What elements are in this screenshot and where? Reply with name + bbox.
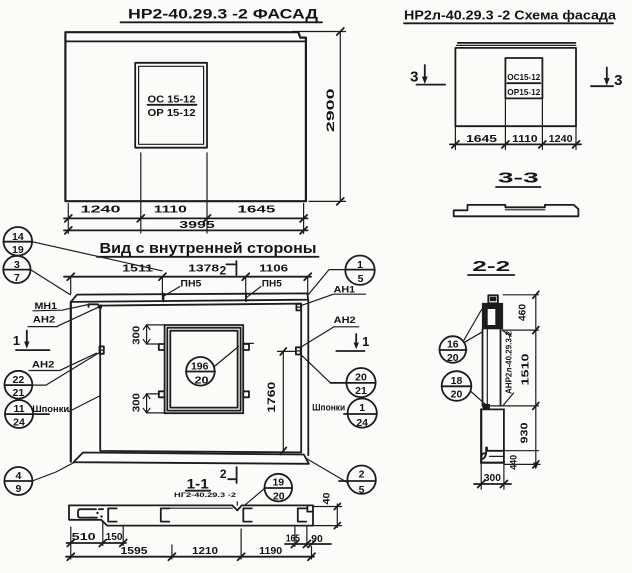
- svg-text:11: 11: [13, 403, 24, 415]
- svg-text:165: 165: [286, 534, 300, 545]
- svg-text:1: 1: [357, 259, 363, 271]
- svg-text:1106: 1106: [259, 263, 288, 275]
- svg-text:3: 3: [614, 72, 622, 89]
- svg-text:1: 1: [362, 334, 369, 349]
- svg-text:5: 5: [359, 484, 365, 496]
- svg-text:3-3: 3-3: [498, 171, 539, 187]
- svg-text:1110: 1110: [154, 204, 187, 216]
- svg-text:20: 20: [451, 389, 463, 401]
- svg-text:19: 19: [272, 476, 284, 488]
- svg-text:196: 196: [191, 361, 209, 373]
- svg-text:АН2: АН2: [334, 315, 356, 326]
- svg-text:1595: 1595: [121, 546, 149, 557]
- svg-text:1190: 1190: [259, 546, 282, 557]
- svg-text:300: 300: [131, 325, 142, 344]
- svg-text:7: 7: [14, 272, 20, 284]
- svg-text:3: 3: [14, 259, 20, 271]
- svg-text:21: 21: [355, 385, 367, 397]
- svg-text:НР2л-40.29.3 -2 Схема фасада: НР2л-40.29.3 -2 Схема фасада: [404, 8, 617, 23]
- svg-text:22: 22: [13, 374, 25, 386]
- svg-text:4: 4: [15, 470, 21, 482]
- svg-text:460: 460: [516, 304, 528, 321]
- svg-text:20: 20: [447, 352, 459, 364]
- svg-text:ОС15-12: ОС15-12: [507, 72, 540, 82]
- svg-text:ПН5: ПН5: [262, 278, 283, 289]
- svg-text:1240: 1240: [81, 204, 121, 216]
- svg-text:14: 14: [12, 231, 24, 243]
- svg-text:2900: 2900: [325, 88, 337, 132]
- svg-text:19: 19: [12, 244, 24, 256]
- svg-text:150: 150: [106, 532, 123, 543]
- svg-text:АН2: АН2: [32, 360, 55, 371]
- svg-text:1645: 1645: [237, 204, 275, 216]
- svg-text:2: 2: [219, 264, 226, 278]
- svg-text:Шпонки: Шпонки: [312, 403, 345, 414]
- svg-text:5: 5: [358, 273, 364, 285]
- svg-text:16: 16: [447, 339, 459, 351]
- svg-text:24: 24: [356, 417, 368, 429]
- svg-text:1: 1: [359, 402, 365, 414]
- svg-text:40: 40: [322, 493, 333, 505]
- svg-text:НР2-40.29.3 -2 ФАСАД: НР2-40.29.3 -2 ФАСАД: [128, 7, 318, 22]
- svg-text:АН2: АН2: [33, 315, 56, 326]
- svg-text:930: 930: [518, 422, 530, 443]
- svg-text:90: 90: [311, 534, 323, 545]
- svg-text:3: 3: [410, 69, 418, 86]
- svg-text:1760: 1760: [266, 382, 278, 413]
- svg-text:ОС 15-12: ОС 15-12: [148, 93, 196, 105]
- svg-text:1210: 1210: [192, 546, 219, 557]
- svg-text:20: 20: [273, 491, 285, 503]
- svg-text:ПН5: ПН5: [180, 278, 202, 289]
- svg-text:1: 1: [13, 333, 20, 348]
- svg-text:1240: 1240: [549, 133, 573, 145]
- svg-text:1378: 1378: [188, 263, 219, 275]
- svg-text:510: 510: [72, 532, 97, 543]
- svg-text:1645: 1645: [466, 133, 497, 145]
- svg-text:440: 440: [508, 455, 518, 470]
- svg-text:18: 18: [451, 375, 463, 387]
- svg-text:24: 24: [13, 416, 25, 428]
- svg-text:НГ2-40.29.3 -2: НГ2-40.29.3 -2: [174, 492, 237, 499]
- svg-text:2: 2: [220, 467, 227, 481]
- svg-text:Шпонки: Шпонки: [32, 404, 69, 415]
- svg-text:ОР 15-12: ОР 15-12: [148, 107, 196, 119]
- svg-text:2-2: 2-2: [472, 258, 510, 275]
- svg-text:300: 300: [484, 473, 501, 484]
- svg-text:1110: 1110: [512, 133, 538, 145]
- svg-text:300: 300: [131, 393, 142, 412]
- svg-text:1510: 1510: [521, 353, 532, 386]
- svg-text:3995: 3995: [179, 219, 215, 231]
- svg-text:1511: 1511: [122, 263, 153, 275]
- svg-text:Вид с внутренней стороны: Вид с внутренней стороны: [100, 241, 317, 257]
- svg-text:2: 2: [359, 469, 365, 481]
- svg-text:ОР15-12: ОР15-12: [507, 87, 540, 97]
- svg-text:21: 21: [13, 387, 25, 399]
- svg-text:АНР2л-40.29.3-2: АНР2л-40.29.3-2: [503, 331, 513, 394]
- svg-text:20: 20: [195, 375, 209, 387]
- svg-text:9: 9: [15, 483, 21, 495]
- svg-text:20: 20: [355, 372, 367, 384]
- svg-text:1-1: 1-1: [187, 476, 209, 492]
